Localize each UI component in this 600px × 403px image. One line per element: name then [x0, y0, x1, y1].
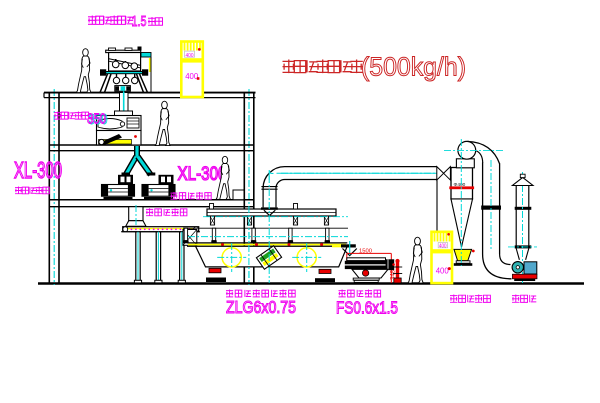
svg-text:400: 400	[186, 53, 194, 59]
svg-text:1.5: 1.5	[132, 13, 147, 30]
svg-text:400: 400	[439, 243, 447, 249]
svg-text:(500kg/h): (500kg/h)	[361, 52, 466, 82]
svg-text:FS0.6x1.5: FS0.6x1.5	[336, 298, 398, 318]
svg-text:ZLG6x0.75: ZLG6x0.75	[226, 297, 296, 317]
svg-text:XL-300: XL-300	[14, 157, 62, 183]
svg-text:350: 350	[87, 111, 106, 128]
svg-text:1500: 1500	[359, 249, 372, 255]
svg-text:400: 400	[436, 265, 449, 275]
svg-text:XL-300: XL-300	[178, 164, 227, 185]
svg-text:400: 400	[185, 71, 198, 81]
